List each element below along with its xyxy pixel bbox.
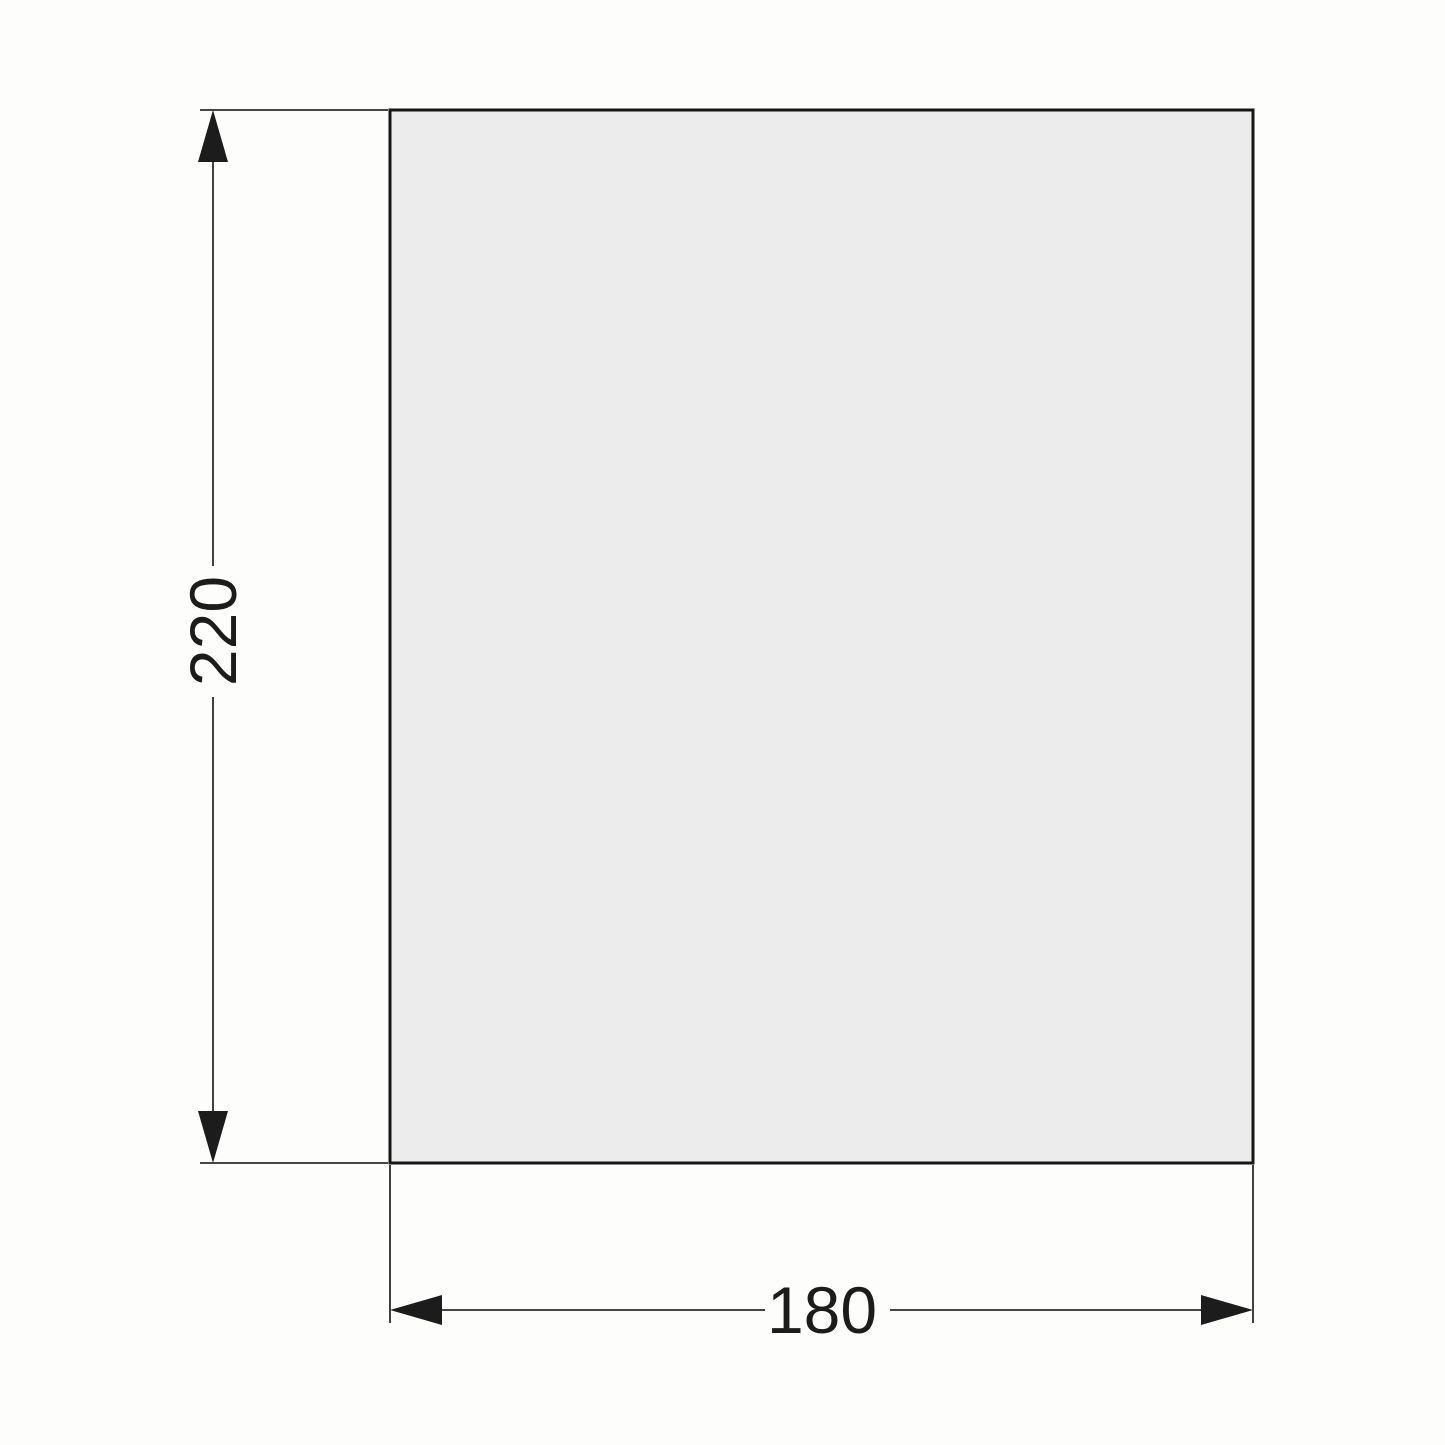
arrow-down-icon	[198, 1111, 228, 1163]
arrow-right-icon	[1201, 1295, 1253, 1325]
width-dimension-label: 180	[767, 1273, 877, 1347]
part-rectangle	[390, 110, 1253, 1163]
arrow-up-icon	[198, 110, 228, 162]
drawing-canvas: 220 180	[0, 0, 1445, 1445]
arrow-left-icon	[390, 1295, 442, 1325]
technical-drawing-svg: 220 180	[0, 0, 1445, 1445]
height-dimension-label: 220	[176, 576, 250, 686]
